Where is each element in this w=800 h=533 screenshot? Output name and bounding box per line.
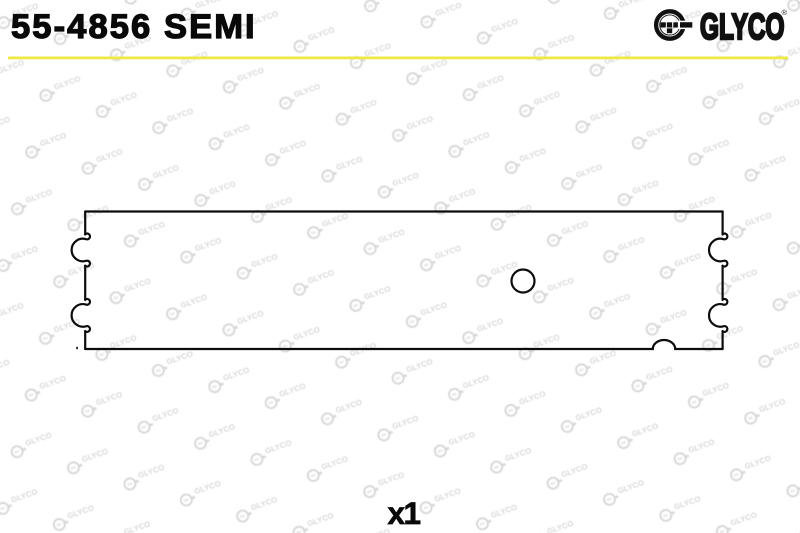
svg-text:55-4856 SEMI: 55-4856 SEMI bbox=[11, 8, 257, 46]
svg-text:GLYCO: GLYCO bbox=[700, 6, 785, 47]
svg-text:x1: x1 bbox=[387, 495, 420, 531]
svg-text:®: ® bbox=[782, 8, 788, 17]
